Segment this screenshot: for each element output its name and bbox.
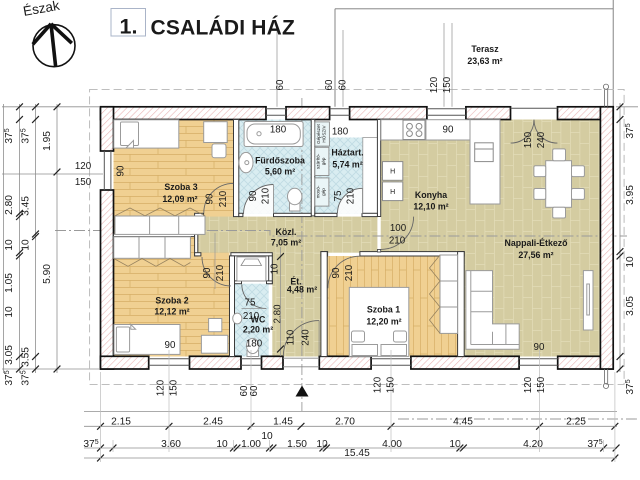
svg-text:1.00: 1.00	[241, 439, 261, 450]
svg-text:75: 75	[245, 298, 256, 309]
svg-text:10: 10	[261, 431, 273, 442]
svg-text:90: 90	[116, 165, 127, 176]
svg-text:12,09 m²: 12,09 m²	[162, 194, 197, 204]
svg-text:4.00: 4.00	[382, 439, 402, 450]
svg-text:10: 10	[270, 263, 281, 274]
svg-text:120: 120	[156, 379, 167, 396]
svg-text:120: 120	[429, 76, 440, 93]
svg-text:WC: WC	[251, 315, 266, 325]
svg-text:90: 90	[165, 340, 176, 351]
svg-text:Fürdőszoba: Fürdőszoba	[255, 156, 305, 166]
svg-text:90: 90	[205, 193, 216, 204]
svg-text:5.90: 5.90	[42, 264, 53, 284]
svg-text:150: 150	[523, 131, 534, 148]
svg-text:HŐSZIV: HŐSZIV	[321, 125, 327, 143]
svg-text:150: 150	[75, 177, 92, 188]
svg-text:4,48 m²: 4,48 m²	[287, 285, 317, 295]
svg-text:5,60 m²: 5,60 m²	[265, 167, 295, 177]
svg-text:Háztart.: Háztart.	[331, 148, 363, 158]
svg-text:2.70: 2.70	[335, 416, 355, 427]
svg-text:2.80: 2.80	[4, 195, 15, 215]
svg-text:3.60: 3.60	[161, 439, 181, 450]
svg-text:Konyha: Konyha	[415, 190, 447, 200]
svg-text:Gépészet: Gépészet	[316, 123, 321, 143]
svg-text:15.45: 15.45	[344, 448, 370, 459]
svg-text:180: 180	[332, 127, 349, 138]
svg-text:Nappali-Étkező: Nappali-Étkező	[504, 238, 568, 248]
svg-text:240: 240	[301, 329, 312, 346]
svg-text:2,20 m²: 2,20 m²	[243, 325, 273, 335]
svg-text:H: H	[390, 169, 395, 176]
svg-text:120: 120	[373, 376, 384, 393]
svg-text:210: 210	[215, 264, 226, 281]
svg-text:Szoba 3: Szoba 3	[164, 182, 197, 192]
svg-text:120: 120	[523, 376, 534, 393]
svg-text:gép: gép	[321, 188, 326, 196]
svg-text:7,05 m²: 7,05 m²	[271, 238, 301, 248]
svg-text:10: 10	[316, 439, 328, 450]
svg-text:150: 150	[536, 376, 547, 393]
svg-text:100: 100	[390, 223, 407, 234]
svg-text:3.05: 3.05	[625, 296, 636, 316]
svg-text:60: 60	[324, 79, 335, 90]
svg-text:10: 10	[4, 239, 15, 251]
svg-text:12,20 m²: 12,20 m²	[366, 317, 401, 327]
svg-text:Szoba 1: Szoba 1	[367, 305, 400, 315]
svg-text:150: 150	[442, 76, 453, 93]
svg-text:szárító-: szárító-	[316, 153, 321, 169]
svg-text:180: 180	[270, 125, 287, 136]
svg-text:gép: gép	[321, 157, 326, 165]
svg-text:1.95: 1.95	[42, 131, 53, 151]
svg-text:3.45: 3.45	[21, 196, 32, 216]
svg-text:23,63 m²: 23,63 m²	[467, 56, 502, 66]
svg-text:1.45: 1.45	[273, 416, 293, 427]
svg-text:4.45: 4.45	[453, 416, 473, 427]
svg-text:Közl.: Közl.	[275, 227, 296, 237]
svg-text:10: 10	[449, 439, 461, 450]
svg-text:10: 10	[4, 306, 15, 318]
svg-text:CSALÁDI HÁZ: CSALÁDI HÁZ	[151, 17, 296, 40]
svg-text:3.95: 3.95	[625, 185, 636, 205]
svg-text:90: 90	[248, 190, 259, 201]
svg-text:90: 90	[331, 267, 342, 278]
svg-text:1.: 1.	[120, 15, 138, 39]
svg-text:210: 210	[344, 264, 355, 281]
svg-text:90: 90	[534, 342, 545, 353]
svg-text:Terasz: Terasz	[471, 44, 499, 54]
svg-text:75: 75	[333, 190, 344, 201]
svg-text:210: 210	[261, 187, 272, 204]
svg-text:10: 10	[21, 239, 32, 251]
svg-text:210: 210	[389, 236, 406, 247]
svg-text:10: 10	[216, 439, 228, 450]
svg-text:Szoba 2: Szoba 2	[155, 296, 188, 306]
svg-text:90: 90	[202, 267, 213, 278]
svg-text:2.80: 2.80	[273, 304, 284, 324]
svg-text:4.20: 4.20	[523, 439, 543, 450]
svg-text:2.45: 2.45	[203, 416, 223, 427]
svg-text:3.55: 3.55	[21, 347, 32, 367]
svg-text:110: 110	[286, 329, 297, 345]
svg-text:180: 180	[246, 339, 263, 350]
svg-text:60: 60	[338, 79, 349, 90]
svg-text:27,56 m²: 27,56 m²	[518, 250, 553, 260]
svg-text:150: 150	[169, 379, 180, 396]
svg-text:H: H	[390, 189, 395, 196]
svg-text:1.50: 1.50	[287, 439, 307, 450]
svg-text:240: 240	[536, 131, 547, 148]
svg-text:10: 10	[625, 256, 636, 268]
svg-text:210: 210	[218, 190, 229, 207]
svg-text:60: 60	[275, 79, 286, 90]
svg-text:12,10 m²: 12,10 m²	[413, 202, 448, 212]
svg-text:1.05: 1.05	[4, 273, 15, 293]
svg-text:3.05: 3.05	[4, 345, 15, 365]
svg-text:210: 210	[346, 187, 357, 204]
svg-text:mosó-: mosó-	[316, 185, 321, 198]
svg-text:12,12 m²: 12,12 m²	[154, 307, 189, 317]
svg-text:120: 120	[75, 161, 92, 172]
svg-text:2.15: 2.15	[111, 416, 131, 427]
svg-text:2.25: 2.25	[566, 416, 586, 427]
svg-text:60: 60	[249, 385, 260, 396]
svg-text:150: 150	[386, 376, 397, 393]
svg-text:90: 90	[443, 125, 454, 136]
svg-text:5,74 m²: 5,74 m²	[332, 160, 362, 170]
